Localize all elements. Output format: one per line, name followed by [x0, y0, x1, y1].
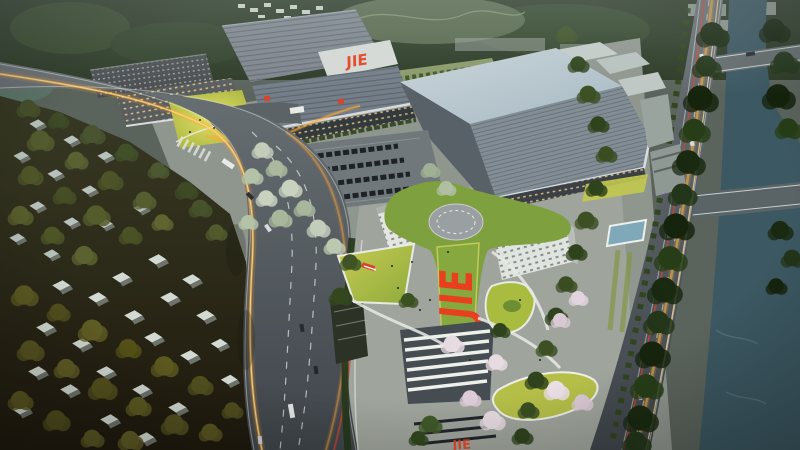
aerial-rendering-jie-campus: JIE: [0, 0, 800, 450]
vignette: [0, 0, 800, 450]
